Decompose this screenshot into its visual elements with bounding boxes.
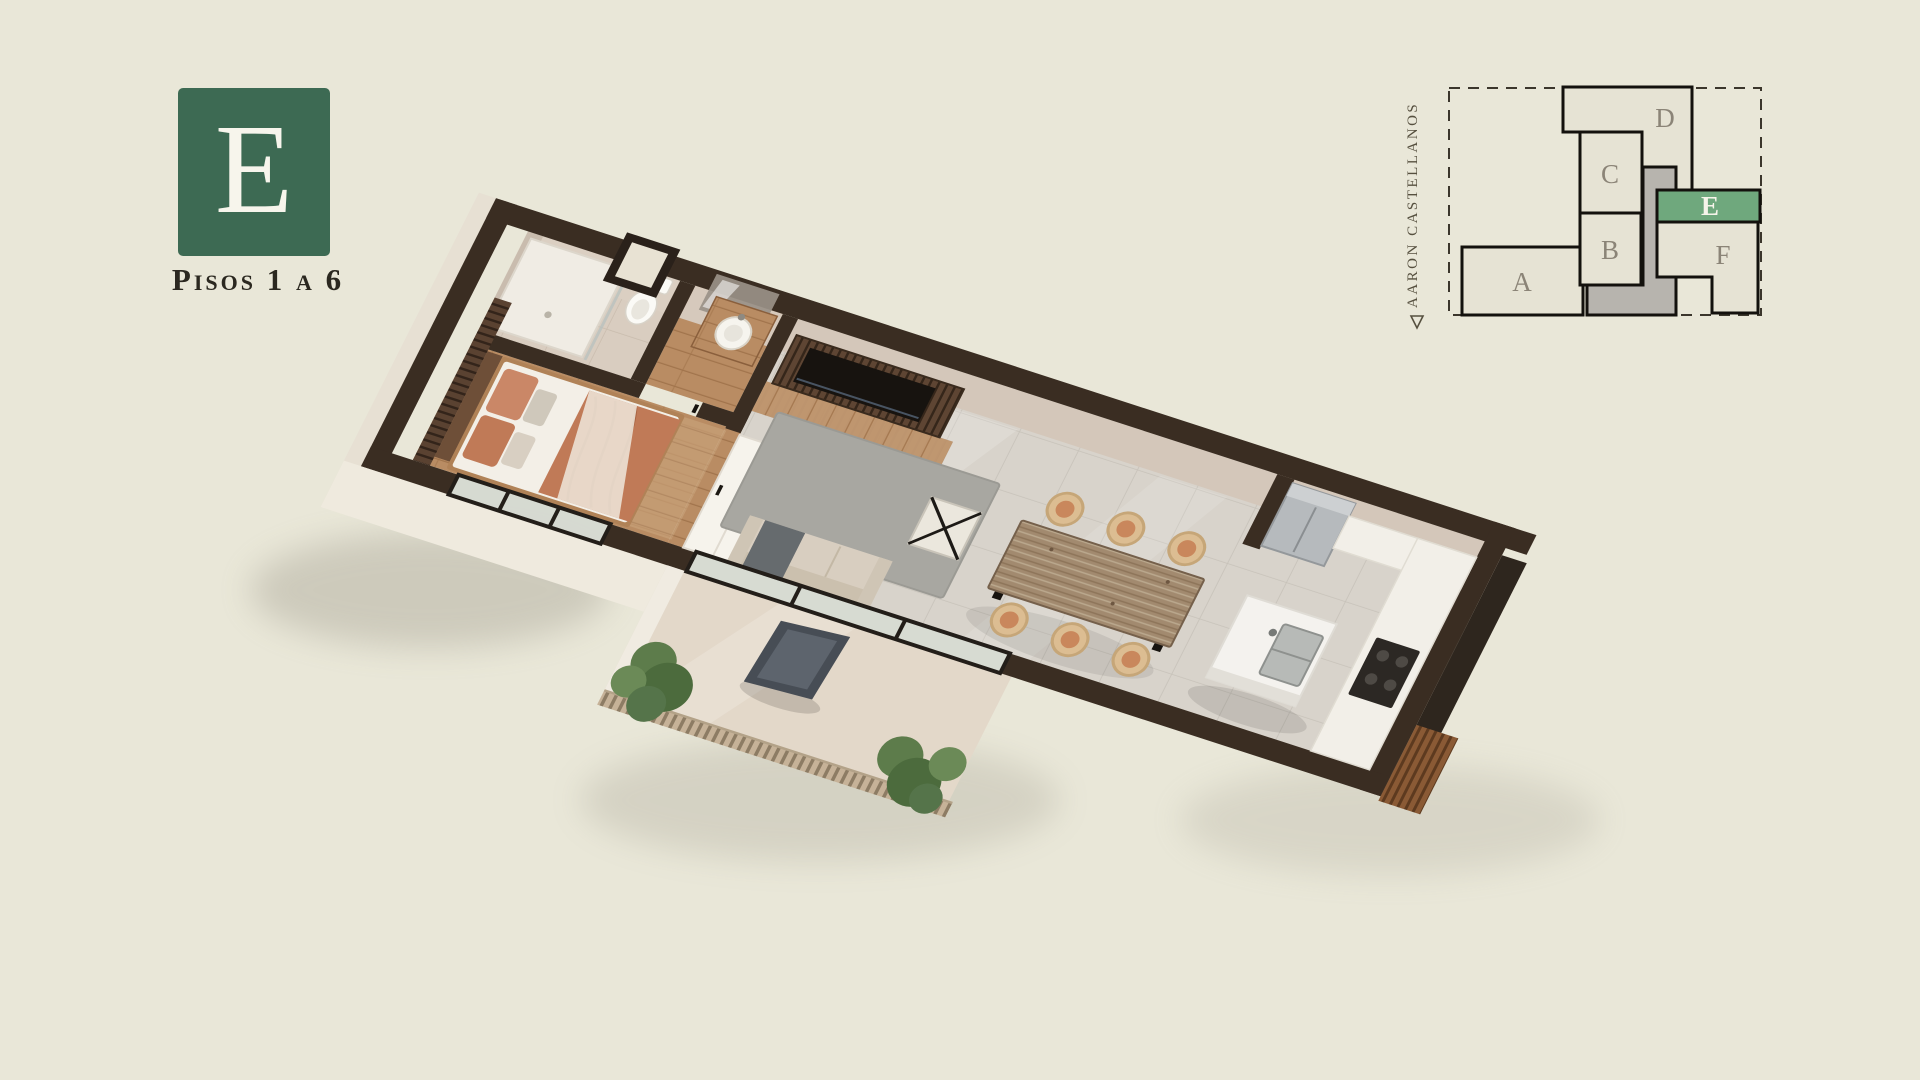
unit-f-label: F [1715, 240, 1730, 270]
apartment-3d-render [200, 120, 1700, 980]
unit-e-label: E [1701, 191, 1719, 221]
bedroom-door-handle [691, 404, 699, 413]
page: E Pisos 1 a 6 AARON CASTELLANOS A B C D … [0, 0, 1920, 1080]
